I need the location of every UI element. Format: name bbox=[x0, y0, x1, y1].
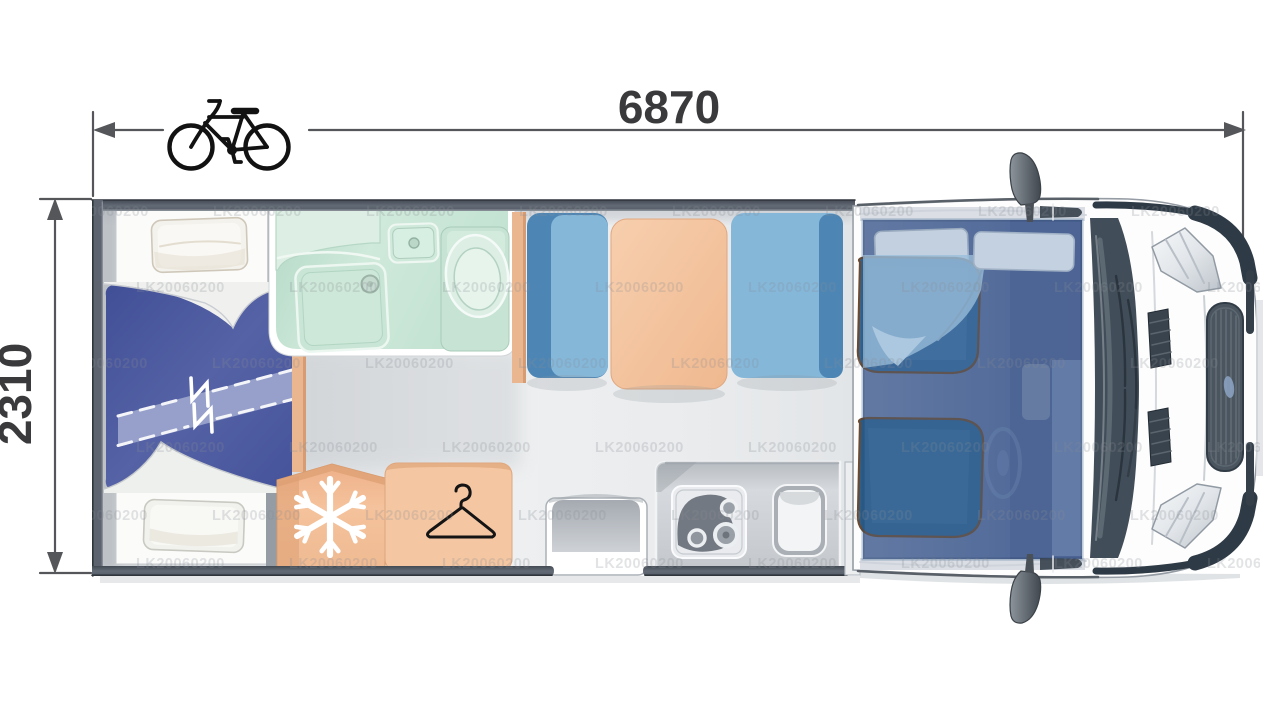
svg-text:LK20060200: LK20060200 bbox=[595, 556, 684, 572]
svg-text:LK20060200: LK20060200 bbox=[519, 204, 608, 220]
svg-text:LK20060200: LK20060200 bbox=[289, 440, 378, 456]
svg-text:LK20060200: LK20060200 bbox=[748, 556, 837, 572]
svg-text:LK20060200: LK20060200 bbox=[748, 280, 837, 296]
svg-text:LK20060200: LK20060200 bbox=[977, 508, 1066, 524]
svg-text:LK20060200: LK20060200 bbox=[289, 556, 378, 572]
svg-text:LK20060200: LK20060200 bbox=[213, 204, 302, 220]
svg-text:LK20060200: LK20060200 bbox=[212, 356, 301, 372]
svg-text:LK20060200: LK20060200 bbox=[365, 508, 454, 524]
svg-text:LK20060200: LK20060200 bbox=[212, 508, 301, 524]
svg-text:LK20060200: LK20060200 bbox=[978, 204, 1067, 220]
svg-text:LK20060200: LK20060200 bbox=[365, 356, 454, 372]
svg-text:LK20060200: LK20060200 bbox=[366, 204, 455, 220]
svg-text:LK20060200: LK20060200 bbox=[977, 356, 1066, 372]
svg-text:LK20060200: LK20060200 bbox=[825, 204, 914, 220]
svg-text:LK20060200: LK20060200 bbox=[671, 508, 760, 524]
svg-text:LK20060200: LK20060200 bbox=[136, 280, 225, 296]
svg-text:LK20060200: LK20060200 bbox=[1131, 204, 1220, 220]
svg-text:LK20060200: LK20060200 bbox=[518, 356, 607, 372]
svg-text:LK20060200: LK20060200 bbox=[136, 440, 225, 456]
svg-text:2310: 2310 bbox=[0, 343, 41, 445]
svg-text:LK20060200: LK20060200 bbox=[672, 204, 761, 220]
svg-text:6870: 6870 bbox=[618, 81, 720, 133]
svg-text:LK20060200: LK20060200 bbox=[748, 440, 837, 456]
svg-text:LK20060200: LK20060200 bbox=[289, 280, 378, 296]
svg-text:LK20060200: LK20060200 bbox=[901, 556, 990, 572]
svg-text:LK20060200: LK20060200 bbox=[901, 440, 990, 456]
svg-text:LK20060200: LK20060200 bbox=[824, 508, 913, 524]
svg-text:LK20060200: LK20060200 bbox=[595, 440, 684, 456]
svg-text:LK20060200: LK20060200 bbox=[136, 556, 225, 572]
svg-text:LK20060200: LK20060200 bbox=[1130, 356, 1219, 372]
svg-text:LK20060200: LK20060200 bbox=[824, 356, 913, 372]
svg-text:LK20060200: LK20060200 bbox=[1130, 508, 1219, 524]
svg-text:LK20060200: LK20060200 bbox=[595, 280, 684, 296]
svg-text:LK20060200: LK20060200 bbox=[442, 280, 531, 296]
svg-text:LK20060200: LK20060200 bbox=[671, 356, 760, 372]
svg-text:LK20060200: LK20060200 bbox=[901, 280, 990, 296]
svg-text:LK20060200: LK20060200 bbox=[442, 556, 531, 572]
svg-text:LK20060200: LK20060200 bbox=[442, 440, 531, 456]
svg-text:LK20060200: LK20060200 bbox=[1054, 556, 1143, 572]
svg-text:LK20060200: LK20060200 bbox=[1054, 440, 1143, 456]
svg-text:LK20060200: LK20060200 bbox=[1054, 280, 1143, 296]
svg-text:LK20060200: LK20060200 bbox=[518, 508, 607, 524]
